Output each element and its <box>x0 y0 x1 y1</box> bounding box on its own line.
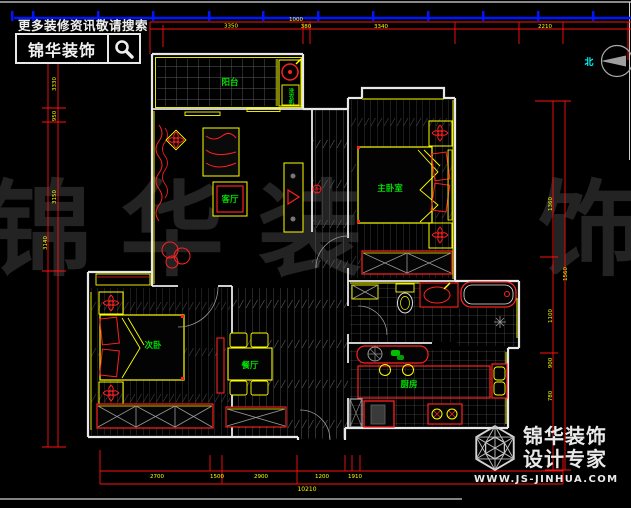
dim-value: 1500 <box>210 474 224 480</box>
dim-total: 10210 <box>297 486 316 493</box>
tv-cabinet <box>284 163 303 232</box>
right-dimension-lines <box>535 101 571 470</box>
dim-value: 1360 <box>548 197 554 211</box>
left-dimension-labels: 3330 950 3150 3140 <box>43 77 58 250</box>
north-label: 北 <box>584 56 593 68</box>
dim-value: 3330 <box>52 77 58 91</box>
room-label-dining: 餐厅 <box>240 360 259 371</box>
wardrobe <box>362 251 452 274</box>
promo-slogan: 更多装修资讯敬请搜索 <box>18 15 148 34</box>
chair <box>251 333 268 347</box>
gas-stove <box>428 404 462 424</box>
dim-value: 1100 <box>548 309 554 323</box>
dim-value: 950 <box>52 110 58 121</box>
double-sink <box>492 364 507 398</box>
top-closet <box>96 274 150 285</box>
brand-search-box: 锦华装饰 <box>15 33 141 64</box>
floorplan-image: 锦 华 装 饰 <box>0 0 631 508</box>
dim-value: 780 <box>548 390 554 401</box>
curtain <box>156 125 162 221</box>
dim-value: 1000 <box>289 17 303 23</box>
jinhua-cube-logo-icon <box>470 423 520 473</box>
chair <box>251 381 268 395</box>
dim-value: 2700 <box>150 474 164 480</box>
sofa <box>203 128 239 176</box>
bar-counter <box>357 346 428 363</box>
bed <box>100 315 184 380</box>
brand-name: 锦华装饰 <box>17 37 107 61</box>
dim-value: 3140 <box>43 236 49 250</box>
shoe-cabinet <box>226 407 286 427</box>
footer-logo: 锦华装饰 设计专家 <box>470 423 607 473</box>
room-label-kitchen: 厨房 <box>400 379 417 390</box>
dim-value: 3350 <box>224 24 238 30</box>
room-label-master: 主卧室 <box>377 183 403 194</box>
room-living: 客厅 <box>156 125 303 268</box>
bottom-dimension-labels: 2700 1500 2900 1200 1910 10210 <box>150 474 362 493</box>
dim-value: 1910 <box>348 474 362 480</box>
right-dimension-labels: 1360 1560 1100 900 780 <box>548 197 569 402</box>
footer-website: WWW.JS-JINHUA.COM <box>474 474 618 485</box>
north-indicator: 北 <box>584 46 631 77</box>
room-label-living: 客厅 <box>220 194 239 205</box>
search-icon <box>109 39 139 59</box>
fridge <box>364 401 394 427</box>
footer-brand: 锦华装饰 <box>523 425 607 448</box>
dim-value: 380 <box>301 24 312 30</box>
toilet <box>396 284 414 313</box>
dim-value: 1560 <box>563 267 569 281</box>
dim-value: 900 <box>548 357 554 368</box>
room-label-balcony: 阳台 <box>221 77 239 88</box>
wardrobe <box>97 404 213 428</box>
sink-vanity <box>420 283 458 307</box>
dim-value: 3340 <box>374 24 388 30</box>
dim-value: 1200 <box>315 474 329 480</box>
bathtub <box>461 282 516 307</box>
side-cabinet <box>217 338 224 393</box>
compass-needle-icon <box>601 56 626 67</box>
room-label-second-bedroom: 次卧 <box>144 340 162 351</box>
chair <box>230 333 247 347</box>
plant-stand <box>166 130 186 150</box>
chair <box>230 381 247 395</box>
dim-value: 2210 <box>538 24 552 30</box>
dim-value: 2900 <box>254 474 268 480</box>
plant <box>162 242 190 268</box>
floor-lamp <box>313 185 321 193</box>
dim-value: 3150 <box>52 190 58 204</box>
footer-tagline: 设计专家 <box>523 448 607 471</box>
